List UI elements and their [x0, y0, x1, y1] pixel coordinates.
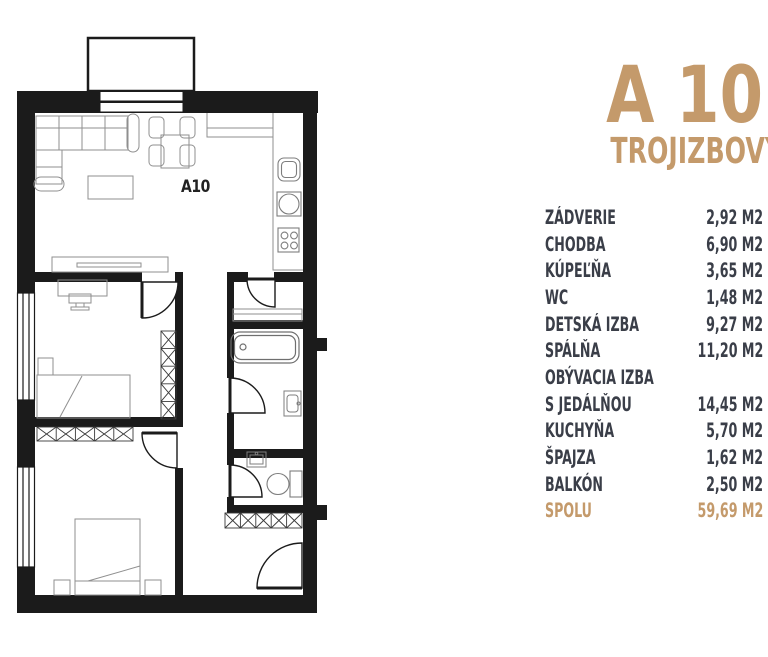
- door-childrens-room: [142, 282, 178, 318]
- window-bedroom: [18, 467, 35, 567]
- bathroom-sink: [284, 391, 301, 416]
- door-entry: [257, 543, 302, 588]
- room-label: SPÁLŇA: [545, 339, 600, 362]
- room-area: 3,65 M2: [706, 259, 763, 282]
- room-area: 1,62 M2: [706, 446, 763, 469]
- room-label: KUCHYŇA: [545, 419, 614, 442]
- room-label: DETSKÁ IZBA: [545, 313, 639, 336]
- coffee-table: [88, 176, 133, 199]
- room-area: 5,70 M2: [706, 419, 763, 442]
- double-bed: [54, 519, 161, 595]
- room-row: OBÝVACIA IZBA: [545, 364, 763, 391]
- floor-plan: A10: [0, 0, 340, 653]
- tv-sideboard: [52, 257, 168, 272]
- walls: [17, 91, 327, 613]
- wardrobe-entry: [225, 513, 302, 528]
- room-area: 11,20 M2: [697, 339, 763, 362]
- room-label: WC: [545, 286, 568, 309]
- sofa: [34, 114, 139, 191]
- floor-plan-svg: A10: [0, 0, 340, 653]
- room-area: 14,45 M2: [697, 393, 763, 416]
- dining-set: [149, 117, 195, 168]
- wardrobe-bedroom: [37, 427, 133, 441]
- room-label: OBÝVACIA IZBA: [545, 366, 654, 389]
- room-label: SPOLU: [545, 499, 592, 522]
- door-pantry: [247, 279, 275, 307]
- balcony: [88, 38, 194, 91]
- room-area: 9,27 M2: [706, 313, 763, 336]
- room-area: 2,50 M2: [706, 473, 763, 496]
- single-bed: [37, 358, 130, 418]
- wardrobe-childrens-room: [161, 331, 176, 419]
- room-row: ŠPAJZA 1,62 M2: [545, 444, 763, 471]
- room-row: S JEDÁLŇOU 14,45 M2: [545, 391, 763, 418]
- room-label: ZÁDVERIE: [545, 206, 616, 229]
- room-row: SPÁLŇA 11,20 M2: [545, 337, 763, 364]
- room-row: KUCHYŇA 5,70 M2: [545, 418, 763, 445]
- room-label: CHODBA: [545, 233, 605, 256]
- room-label: S JEDÁLŇOU: [545, 393, 632, 416]
- room-row: WC 1,48 M2: [545, 284, 763, 311]
- room-row: DETSKÁ IZBA 9,27 M2: [545, 311, 763, 338]
- kitchen-sink: [278, 158, 300, 181]
- cooktop: [278, 228, 299, 252]
- washing-machine: [277, 192, 301, 216]
- info-panel: A 10 TROJIZBOVÝ APARTMÁN ZÁDVERIE 2,92 M…: [545, 0, 763, 653]
- room-row: KÚPEĽŇA 3,65 M2: [545, 257, 763, 284]
- room-label: BALKÓN: [545, 473, 603, 496]
- room-row: BALKÓN 2,50 M2: [545, 471, 763, 498]
- room-row: SPOLU 59,69 M2: [545, 498, 763, 525]
- door-bathroom: [230, 378, 265, 413]
- bathtub: [231, 332, 299, 363]
- page-title: A 10: [589, 57, 763, 135]
- room-area: 2,92 M2: [706, 206, 763, 229]
- door-wc: [230, 465, 262, 497]
- room-label: KÚPEĽŇA: [545, 259, 611, 282]
- room-label: ŠPAJZA: [545, 446, 595, 469]
- page-subtitle: TROJIZBOVÝ APARTMÁN: [610, 134, 763, 170]
- room-area: 59,69 M2: [697, 499, 763, 522]
- room-area-table: ZÁDVERIE 2,92 M2 CHODBA 6,90 M2 KÚPEĽŇA …: [545, 204, 763, 524]
- door-bedroom: [142, 433, 177, 468]
- pantry-shelf: [233, 309, 302, 321]
- room-row: CHODBA 6,90 M2: [545, 231, 763, 258]
- room-area: 6,90 M2: [706, 233, 763, 256]
- room-row: ZÁDVERIE 2,92 M2: [545, 204, 763, 231]
- unit-label: A10: [181, 177, 211, 197]
- toilet: [267, 471, 302, 497]
- window-childrens-room: [18, 293, 35, 400]
- room-area: 1,48 M2: [706, 286, 763, 309]
